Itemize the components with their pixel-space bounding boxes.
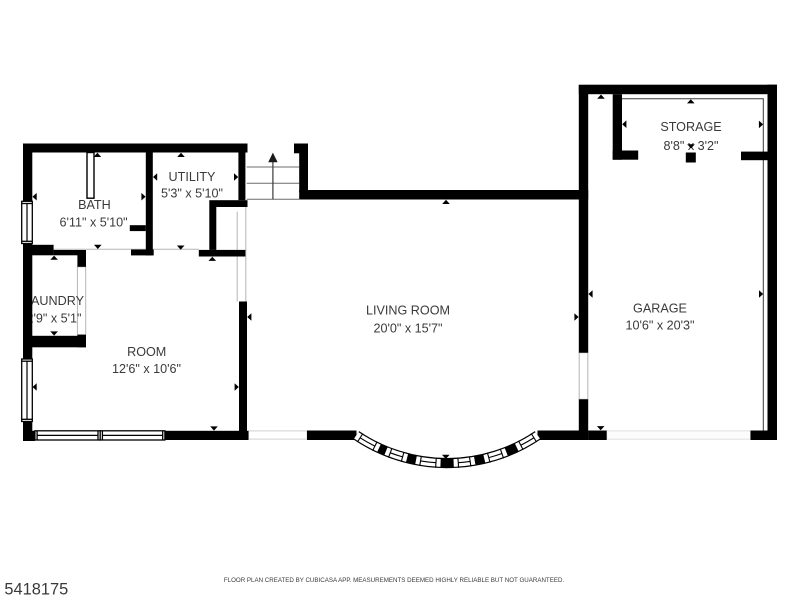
svg-text:STORAGE: STORAGE [660,120,721,134]
svg-text:20'0" x 15'7": 20'0" x 15'7" [373,322,442,336]
svg-text:BATH: BATH [78,198,111,212]
svg-text:LIVING ROOM: LIVING ROOM [366,303,450,317]
svg-text:5418175: 5418175 [4,581,68,599]
svg-text:12'6" x 10'6": 12'6" x 10'6" [112,362,181,376]
svg-text:5'3" x 5'10": 5'3" x 5'10" [161,187,223,201]
svg-text:ROOM: ROOM [127,345,166,359]
svg-text:FLOOR PLAN CREATED BY CUBICASA: FLOOR PLAN CREATED BY CUBICASA APP. MEAS… [224,577,565,584]
svg-text:10'6" x 20'3": 10'6" x 20'3" [625,319,694,333]
svg-text:6'11" x 5'10": 6'11" x 5'10" [60,215,128,229]
svg-text:LAUNDRY: LAUNDRY [24,294,85,308]
svg-text:GARAGE: GARAGE [633,302,687,316]
svg-text:UTILITY: UTILITY [169,170,216,184]
svg-text:2'9" x 5'1": 2'9" x 5'1" [26,311,81,325]
